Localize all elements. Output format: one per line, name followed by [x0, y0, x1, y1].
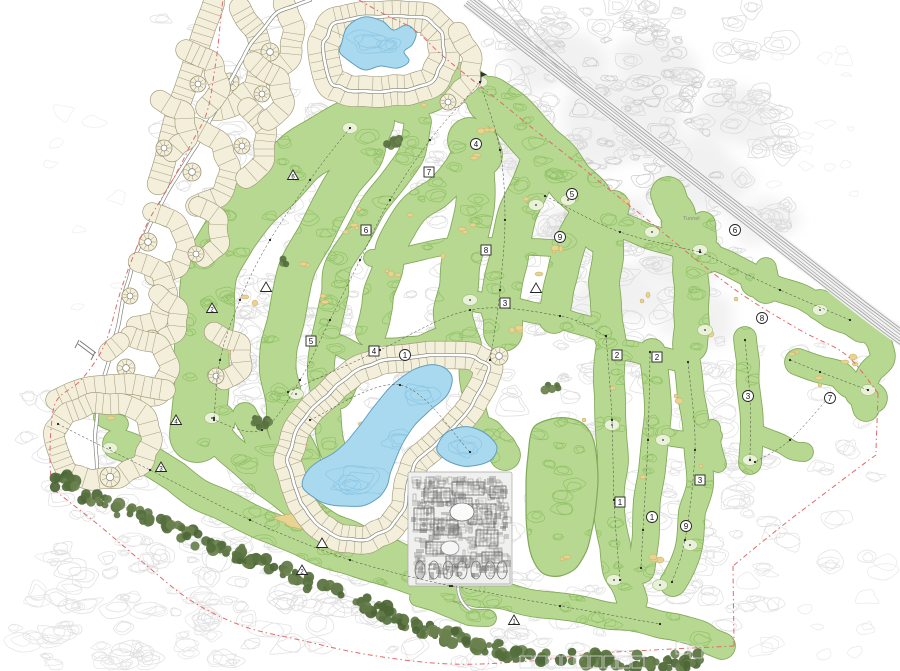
svg-text:3: 3: [698, 476, 703, 485]
svg-text:9: 9: [684, 522, 689, 531]
svg-text:6: 6: [364, 226, 369, 235]
svg-text:3: 3: [503, 299, 508, 308]
svg-text:2: 2: [615, 351, 620, 360]
svg-text:Tunnel: Tunnel: [683, 216, 700, 222]
svg-text:4: 4: [474, 140, 479, 149]
svg-text:1: 1: [650, 513, 655, 522]
svg-text:8: 8: [484, 246, 489, 255]
svg-text:1: 1: [618, 498, 623, 507]
svg-text:3: 3: [746, 392, 751, 401]
svg-text:4: 4: [372, 347, 377, 356]
svg-text:5: 5: [570, 190, 575, 199]
svg-text:9: 9: [558, 233, 563, 242]
svg-text:1: 1: [403, 351, 408, 360]
svg-text:5: 5: [309, 337, 314, 346]
svg-text:7: 7: [427, 168, 432, 177]
svg-text:2: 2: [655, 353, 660, 362]
svg-text:7: 7: [828, 394, 833, 403]
svg-text:6: 6: [733, 226, 738, 235]
svg-text:8: 8: [760, 314, 765, 323]
